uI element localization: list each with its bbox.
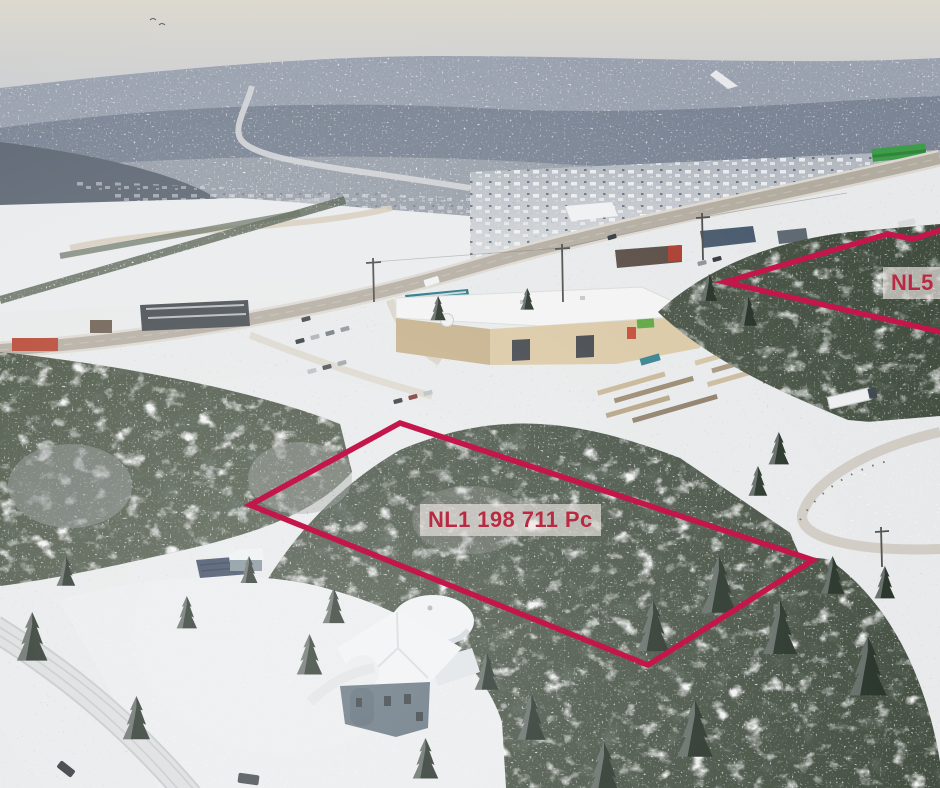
scene-svg — [0, 0, 940, 788]
lot-label-nl1: NL1 198 711 Pc — [420, 504, 601, 536]
lot-label-nl5: NL5 1 — [883, 267, 940, 299]
light-overlay — [0, 0, 940, 788]
aerial-photo: NL1 198 711 Pc NL5 1 — [0, 0, 940, 788]
